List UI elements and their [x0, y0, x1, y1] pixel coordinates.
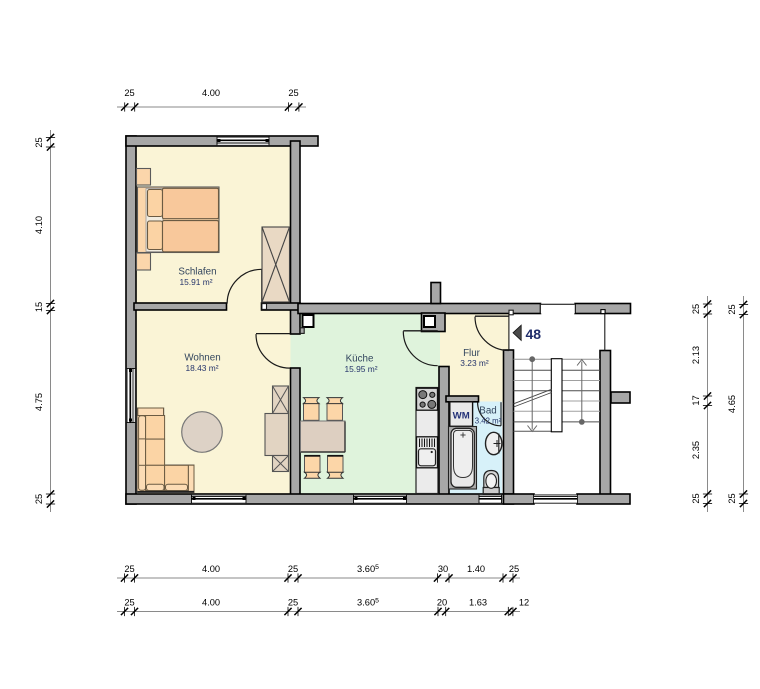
- svg-text:1.40: 1.40: [467, 564, 485, 574]
- svg-text:4.00: 4.00: [202, 88, 220, 98]
- svg-text:2.35: 2.35: [691, 441, 701, 459]
- svg-text:48: 48: [526, 326, 542, 342]
- svg-text:25: 25: [691, 304, 701, 314]
- svg-text:25: 25: [288, 598, 298, 608]
- svg-text:25: 25: [727, 304, 737, 314]
- svg-text:Bad: Bad: [479, 406, 496, 417]
- svg-text:25: 25: [727, 493, 737, 503]
- svg-text:15.91 m²: 15.91 m²: [179, 277, 212, 287]
- svg-text:25: 25: [34, 494, 44, 504]
- svg-text:25: 25: [124, 88, 134, 98]
- svg-text:Küche: Küche: [346, 354, 374, 365]
- svg-text:25: 25: [509, 564, 519, 574]
- svg-text:4.10: 4.10: [34, 216, 44, 234]
- svg-text:Wohnen: Wohnen: [184, 353, 220, 364]
- svg-text:WM: WM: [453, 410, 470, 421]
- svg-text:25: 25: [691, 493, 701, 503]
- svg-text:25: 25: [288, 88, 298, 98]
- svg-text:4.00: 4.00: [202, 598, 220, 608]
- svg-text:25: 25: [124, 598, 134, 608]
- svg-text:18.43 m²: 18.43 m²: [185, 363, 218, 373]
- svg-text:25: 25: [34, 137, 44, 147]
- svg-text:25: 25: [288, 564, 298, 574]
- svg-text:12: 12: [519, 598, 529, 608]
- svg-text:20: 20: [437, 598, 447, 608]
- svg-text:1.63: 1.63: [469, 598, 487, 608]
- svg-text:4.65: 4.65: [727, 395, 737, 413]
- svg-text:15: 15: [34, 302, 44, 312]
- svg-text:17: 17: [691, 395, 701, 405]
- svg-text:15.95 m²: 15.95 m²: [344, 364, 377, 374]
- svg-text:25: 25: [124, 564, 134, 574]
- svg-text:4.00: 4.00: [202, 564, 220, 574]
- svg-text:2.13: 2.13: [691, 346, 701, 364]
- svg-text:3.23 m²: 3.23 m²: [460, 358, 489, 368]
- svg-text:3.42 m²: 3.42 m²: [475, 416, 502, 425]
- svg-text:30: 30: [438, 564, 448, 574]
- svg-text:4.75: 4.75: [34, 393, 44, 411]
